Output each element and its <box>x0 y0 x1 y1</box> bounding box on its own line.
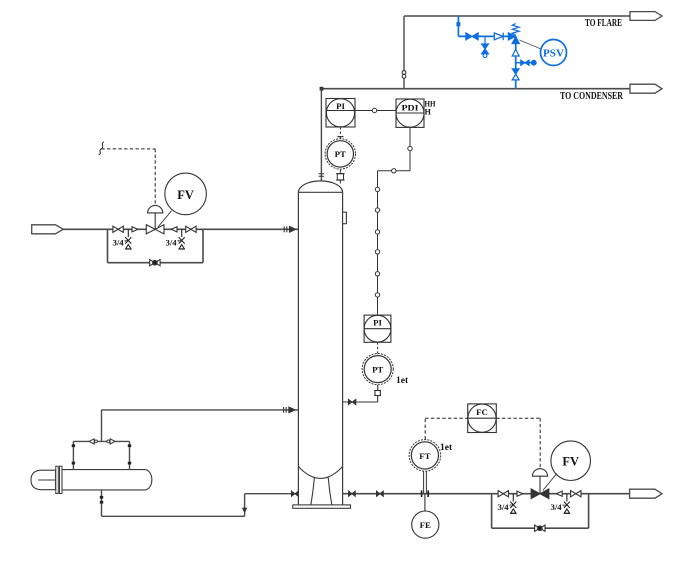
svg-text:TO CONDENSER: TO CONDENSER <box>560 91 624 102</box>
svg-text:PSV: PSV <box>543 48 564 60</box>
svg-text:FV: FV <box>562 455 579 469</box>
svg-text:PT: PT <box>335 149 346 159</box>
svg-text:PT: PT <box>372 365 383 375</box>
svg-text:FC: FC <box>476 407 488 417</box>
svg-text:3/4": 3/4" <box>551 502 567 512</box>
svg-text:3/4": 3/4" <box>166 238 182 248</box>
svg-text:1et: 1et <box>440 443 453 453</box>
svg-text:FV: FV <box>177 188 194 202</box>
svg-text:FT: FT <box>419 451 430 461</box>
svg-text:PI: PI <box>336 101 345 111</box>
svg-text:3/4": 3/4" <box>498 502 514 512</box>
svg-text:H: H <box>425 108 432 117</box>
svg-text:PI: PI <box>373 317 382 327</box>
svg-text:3/4": 3/4" <box>113 238 129 248</box>
svg-text:1et: 1et <box>396 376 409 386</box>
svg-text:PDI: PDI <box>402 103 420 113</box>
svg-text:FE: FE <box>420 520 431 530</box>
svg-text:TO FLARE: TO FLARE <box>585 18 622 29</box>
